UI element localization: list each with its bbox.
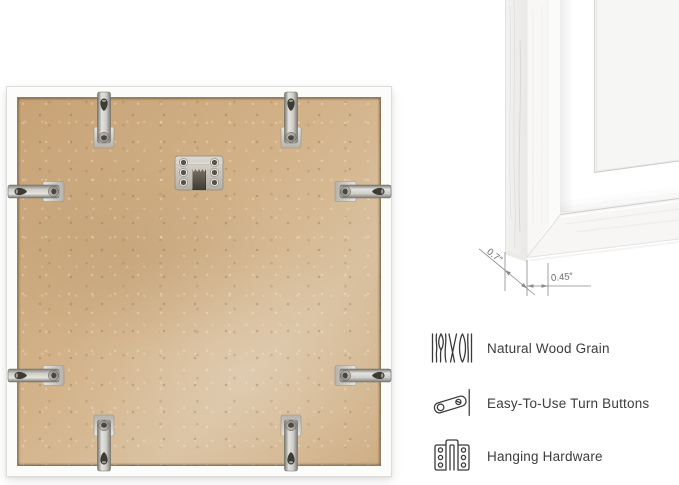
feature-label: Hanging Hardware <box>487 449 603 464</box>
depth-dimension-label: 0.7″ <box>484 246 504 265</box>
product-infographic: 0.7″ 0.45″ Natural Wood Grain <box>0 0 679 485</box>
feature-item-turn-buttons: Easy-To-Use Turn Buttons <box>430 384 649 422</box>
feature-item-wood-grain: Natural Wood Grain <box>430 329 610 367</box>
turn-button-icon <box>430 384 474 422</box>
frame-molding-vertical <box>505 0 560 262</box>
width-dimension-label: 0.45″ <box>551 271 574 284</box>
feature-label: Natural Wood Grain <box>487 341 610 356</box>
artwork-area <box>595 0 679 173</box>
wood-grain-icon <box>430 329 474 367</box>
mat-lip-shadow <box>560 0 574 212</box>
feature-label: Easy-To-Use Turn Buttons <box>487 396 649 411</box>
hanging-hardware-icon <box>430 437 474 475</box>
feature-item-hanging-hardware: Hanging Hardware <box>430 437 603 475</box>
